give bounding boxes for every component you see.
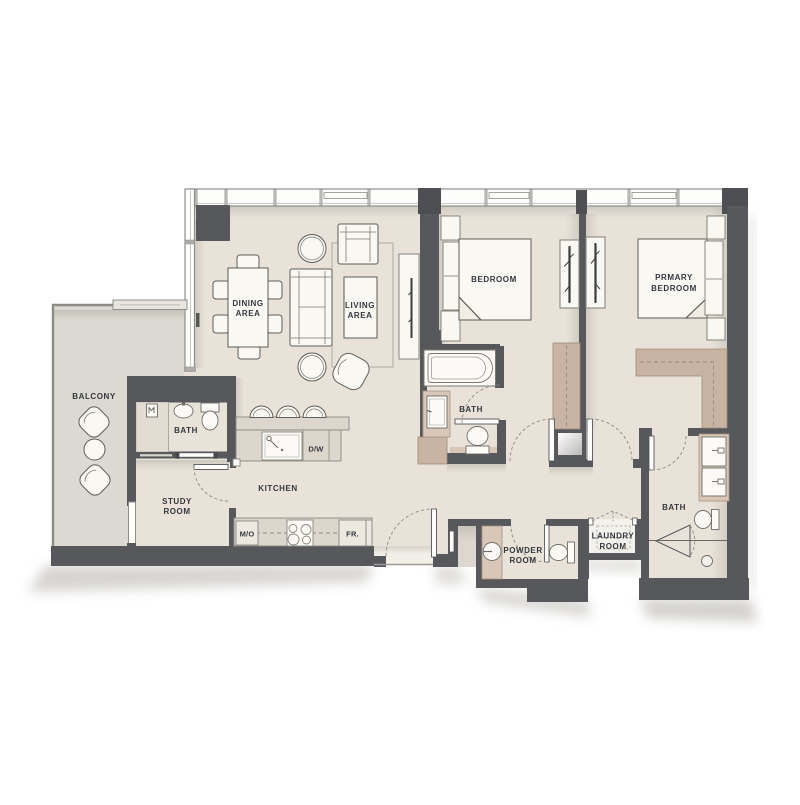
svg-text:BATH: BATH	[459, 405, 483, 414]
svg-text:AREA: AREA	[236, 309, 261, 318]
svg-text:ROOM: ROOM	[163, 507, 190, 516]
svg-text:FR.: FR.	[346, 530, 359, 539]
svg-text:BATH: BATH	[174, 426, 198, 435]
svg-text:LIVING: LIVING	[345, 301, 375, 310]
svg-text:ROOM: ROOM	[509, 556, 536, 565]
svg-text:KITCHEN: KITCHEN	[258, 484, 297, 493]
svg-text:BALCONY: BALCONY	[72, 392, 116, 401]
svg-text:D/W: D/W	[308, 445, 324, 454]
svg-text:ROOM: ROOM	[599, 542, 626, 551]
svg-text:LAUNDRY: LAUNDRY	[592, 532, 635, 541]
svg-text:AREA: AREA	[348, 311, 373, 320]
svg-text:STUDY: STUDY	[162, 497, 192, 506]
svg-text:M/O: M/O	[240, 530, 255, 539]
svg-text:BATH: BATH	[662, 503, 686, 512]
svg-text:POWDER: POWDER	[503, 546, 542, 555]
svg-text:BEDROOM: BEDROOM	[471, 275, 517, 284]
svg-text:DINING: DINING	[232, 299, 263, 308]
svg-text:PRMARY: PRMARY	[655, 273, 693, 282]
svg-text:BEDROOM: BEDROOM	[651, 284, 697, 293]
